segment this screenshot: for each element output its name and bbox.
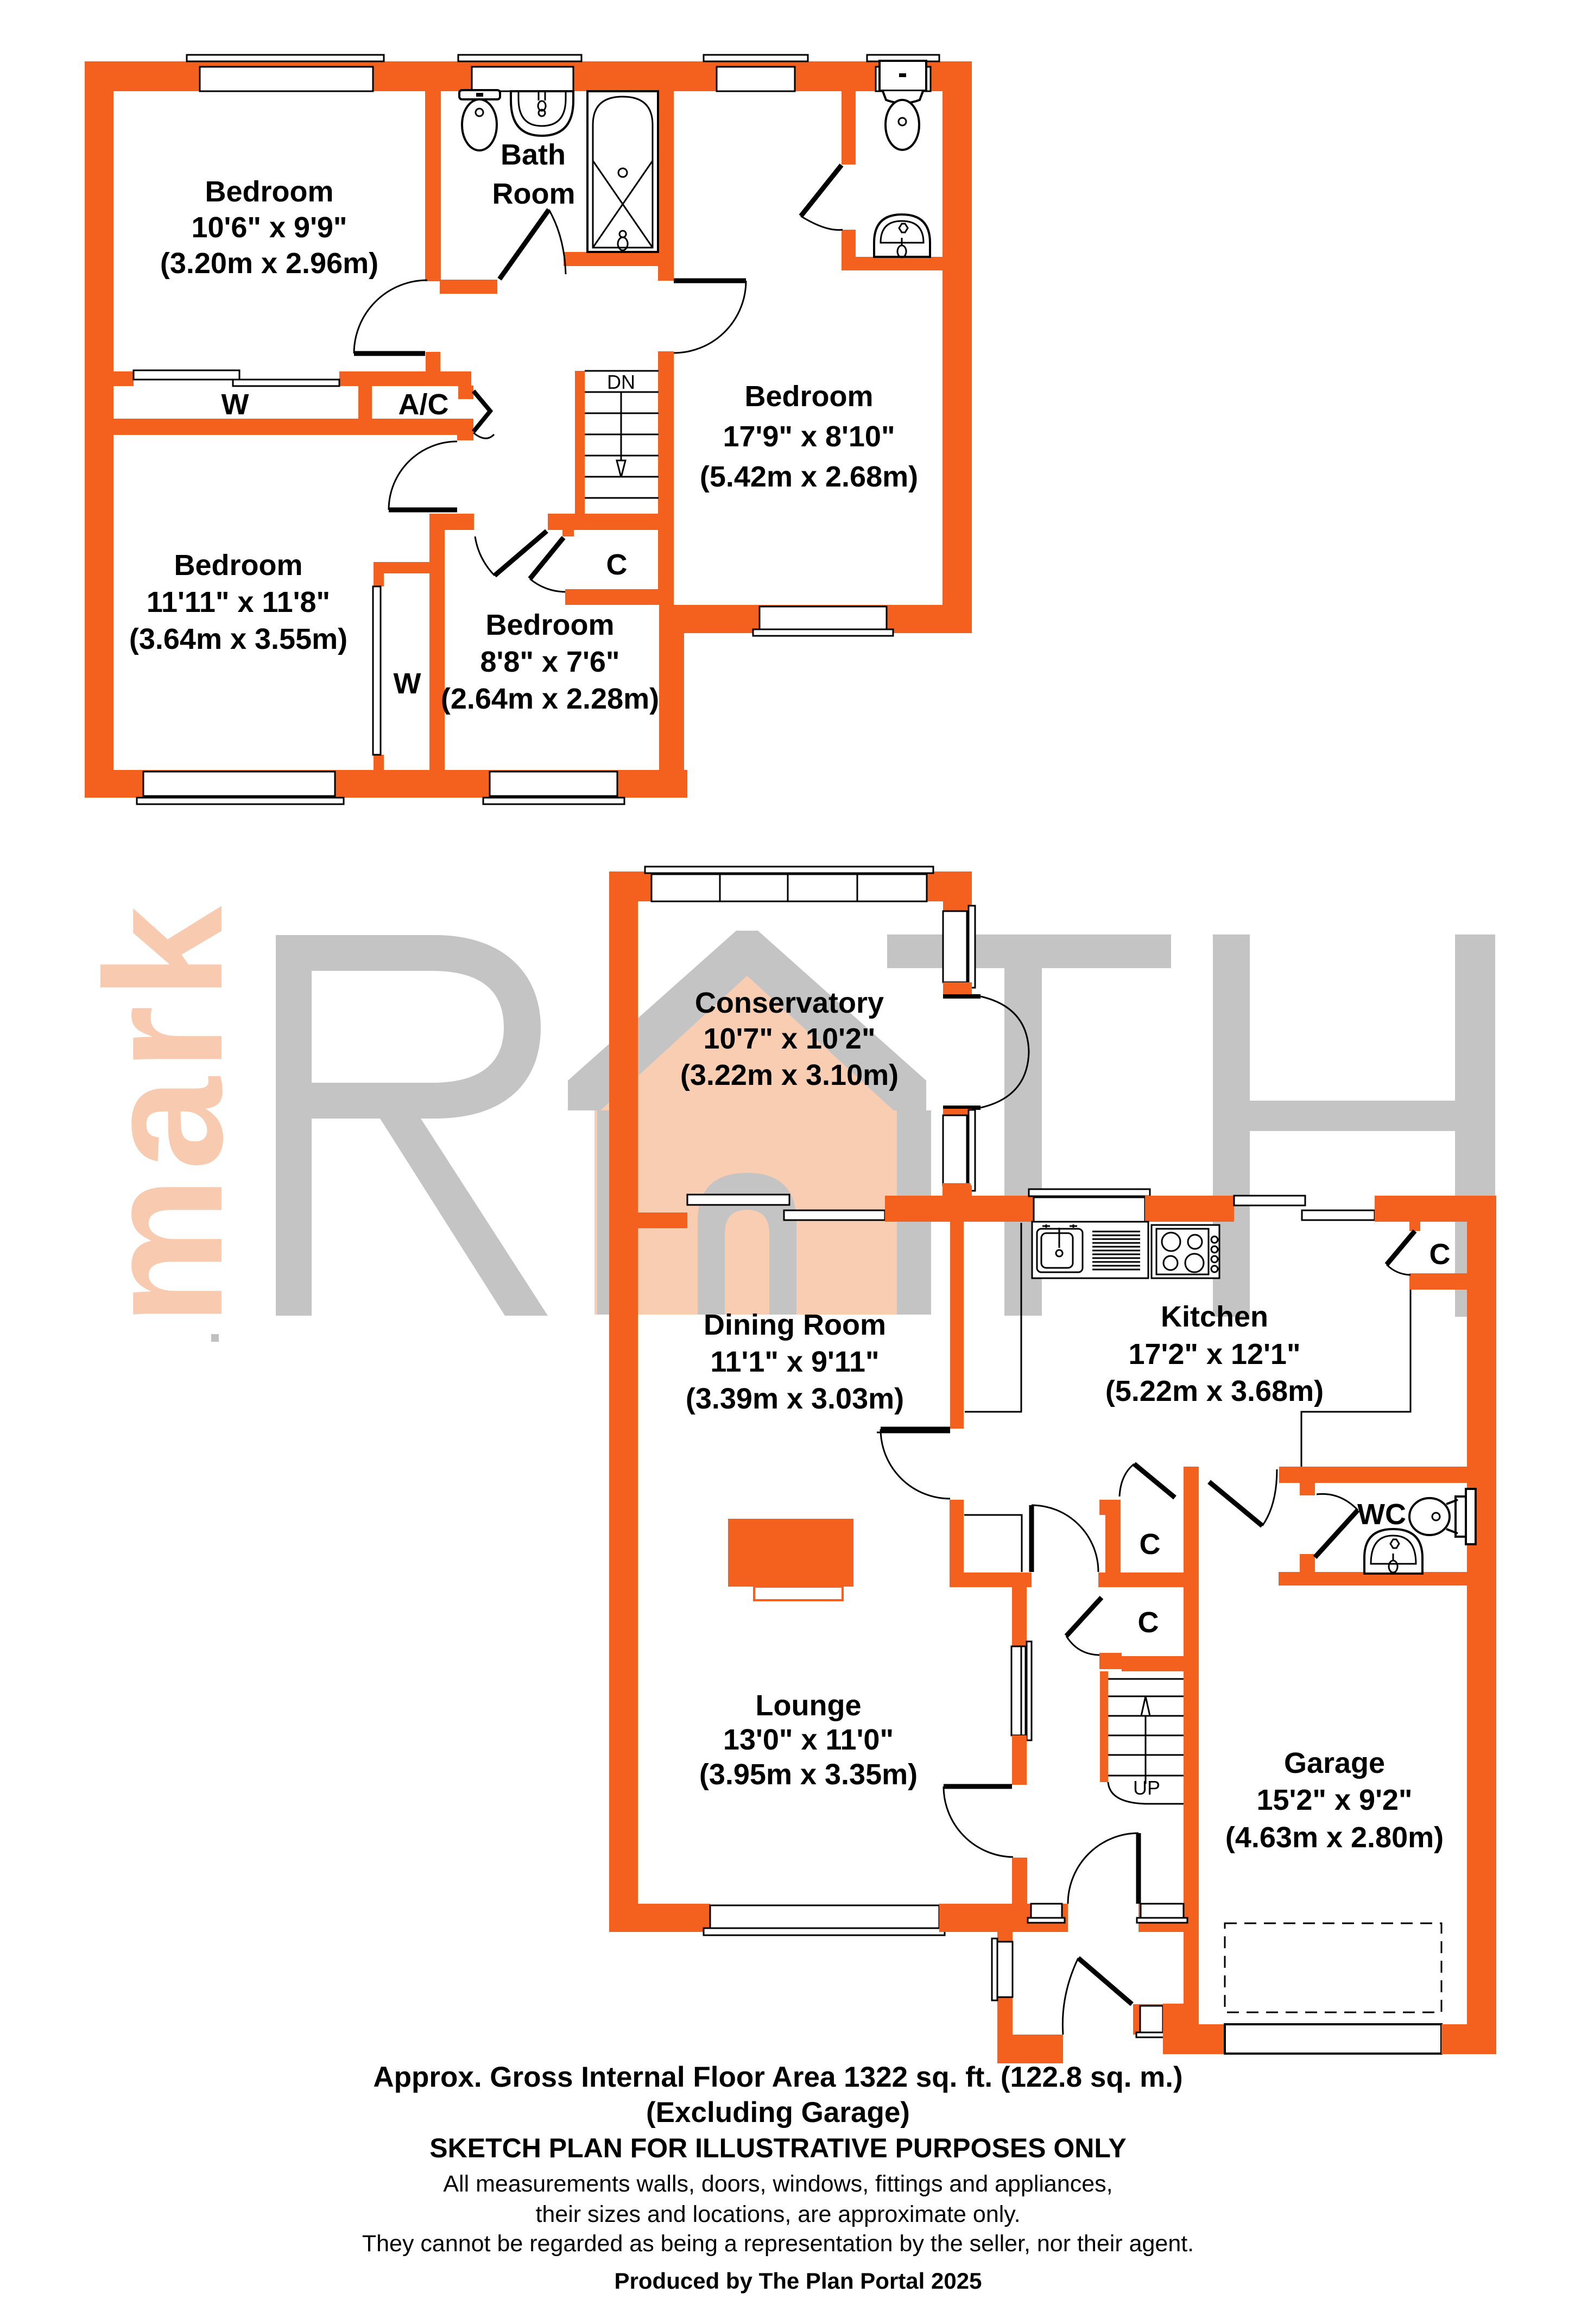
svg-text:DN: DN: [607, 371, 635, 393]
svg-text:Bedroom: Bedroom: [744, 380, 873, 413]
svg-text:Kitchen: Kitchen: [1161, 1300, 1268, 1333]
svg-text:13'0" x 11'0": 13'0" x 11'0": [723, 1723, 894, 1756]
svg-text:W: W: [222, 388, 249, 421]
svg-text:17'9" x 8'10": 17'9" x 8'10": [723, 420, 895, 453]
svg-text:Approx. Gross Internal Floor A: Approx. Gross Internal Floor Area 1322 s…: [373, 2061, 1182, 2093]
svg-text:Lounge: Lounge: [756, 1689, 862, 1722]
svg-text:(Excluding Garage): (Excluding Garage): [646, 2096, 910, 2129]
svg-text:(5.22m x 3.68m): (5.22m x 3.68m): [1105, 1375, 1324, 1407]
svg-text:15'2" x 9'2": 15'2" x 9'2": [1256, 1784, 1412, 1816]
svg-text:(5.42m x 2.68m): (5.42m x 2.68m): [700, 460, 918, 493]
svg-text:Bedroom: Bedroom: [205, 175, 333, 208]
svg-text:(3.20m x 2.96m): (3.20m x 2.96m): [160, 247, 378, 280]
svg-text:W: W: [394, 667, 421, 700]
svg-text:C: C: [606, 548, 628, 581]
svg-text:UP: UP: [1133, 1777, 1160, 1799]
svg-text:Dining Room: Dining Room: [704, 1309, 886, 1341]
svg-text:11'1" x 9'11": 11'1" x 9'11": [710, 1346, 879, 1378]
svg-text:(4.63m x 2.80m): (4.63m x 2.80m): [1225, 1821, 1444, 1854]
svg-text:mark: mark: [71, 900, 257, 1325]
svg-text:All measurements walls, doors,: All measurements walls, doors, windows, …: [443, 2171, 1112, 2197]
svg-text:Produced by The Plan Portal 20: Produced by The Plan Portal 2025: [615, 2268, 982, 2294]
svg-text:A/C: A/C: [399, 388, 449, 421]
svg-text:C: C: [1140, 1528, 1161, 1561]
svg-text:C: C: [1138, 1606, 1159, 1639]
svg-text:WC: WC: [1357, 1498, 1406, 1531]
svg-text:(3.22m x 3.10m): (3.22m x 3.10m): [680, 1059, 899, 1091]
svg-text:C: C: [1429, 1238, 1451, 1271]
svg-text:10'7" x 10'2": 10'7" x 10'2": [703, 1022, 875, 1055]
svg-text:Bath: Bath: [501, 138, 566, 171]
svg-text:Garage: Garage: [1284, 1747, 1385, 1779]
svg-text:SKETCH PLAN FOR ILLUSTRATIVE P: SKETCH PLAN FOR ILLUSTRATIVE PURPOSES ON…: [429, 2133, 1126, 2163]
svg-text:17'2" x 12'1": 17'2" x 12'1": [1128, 1338, 1300, 1371]
svg-text:8'8" x 7'6": 8'8" x 7'6": [480, 646, 619, 678]
svg-text:(3.39m x 3.03m): (3.39m x 3.03m): [686, 1382, 904, 1415]
svg-text:10'6" x 9'9": 10'6" x 9'9": [191, 211, 347, 244]
svg-text:(2.64m x 2.28m): (2.64m x 2.28m): [441, 683, 659, 715]
svg-text:their sizes and locations, are: their sizes and locations, are approxima…: [535, 2201, 1020, 2227]
svg-text:Bedroom: Bedroom: [174, 549, 302, 582]
svg-text:Bedroom: Bedroom: [485, 609, 614, 641]
svg-text:Room: Room: [492, 178, 575, 210]
svg-text:(3.64m x 3.55m): (3.64m x 3.55m): [129, 623, 347, 655]
svg-text:(3.95m x 3.35m): (3.95m x 3.35m): [699, 1758, 918, 1791]
svg-text:They cannot be regarded as bei: They cannot be regarded as being a repre…: [362, 2231, 1194, 2257]
svg-text:Conservatory: Conservatory: [695, 987, 884, 1019]
svg-text:11'11" x 11'8": 11'11" x 11'8": [147, 586, 330, 618]
